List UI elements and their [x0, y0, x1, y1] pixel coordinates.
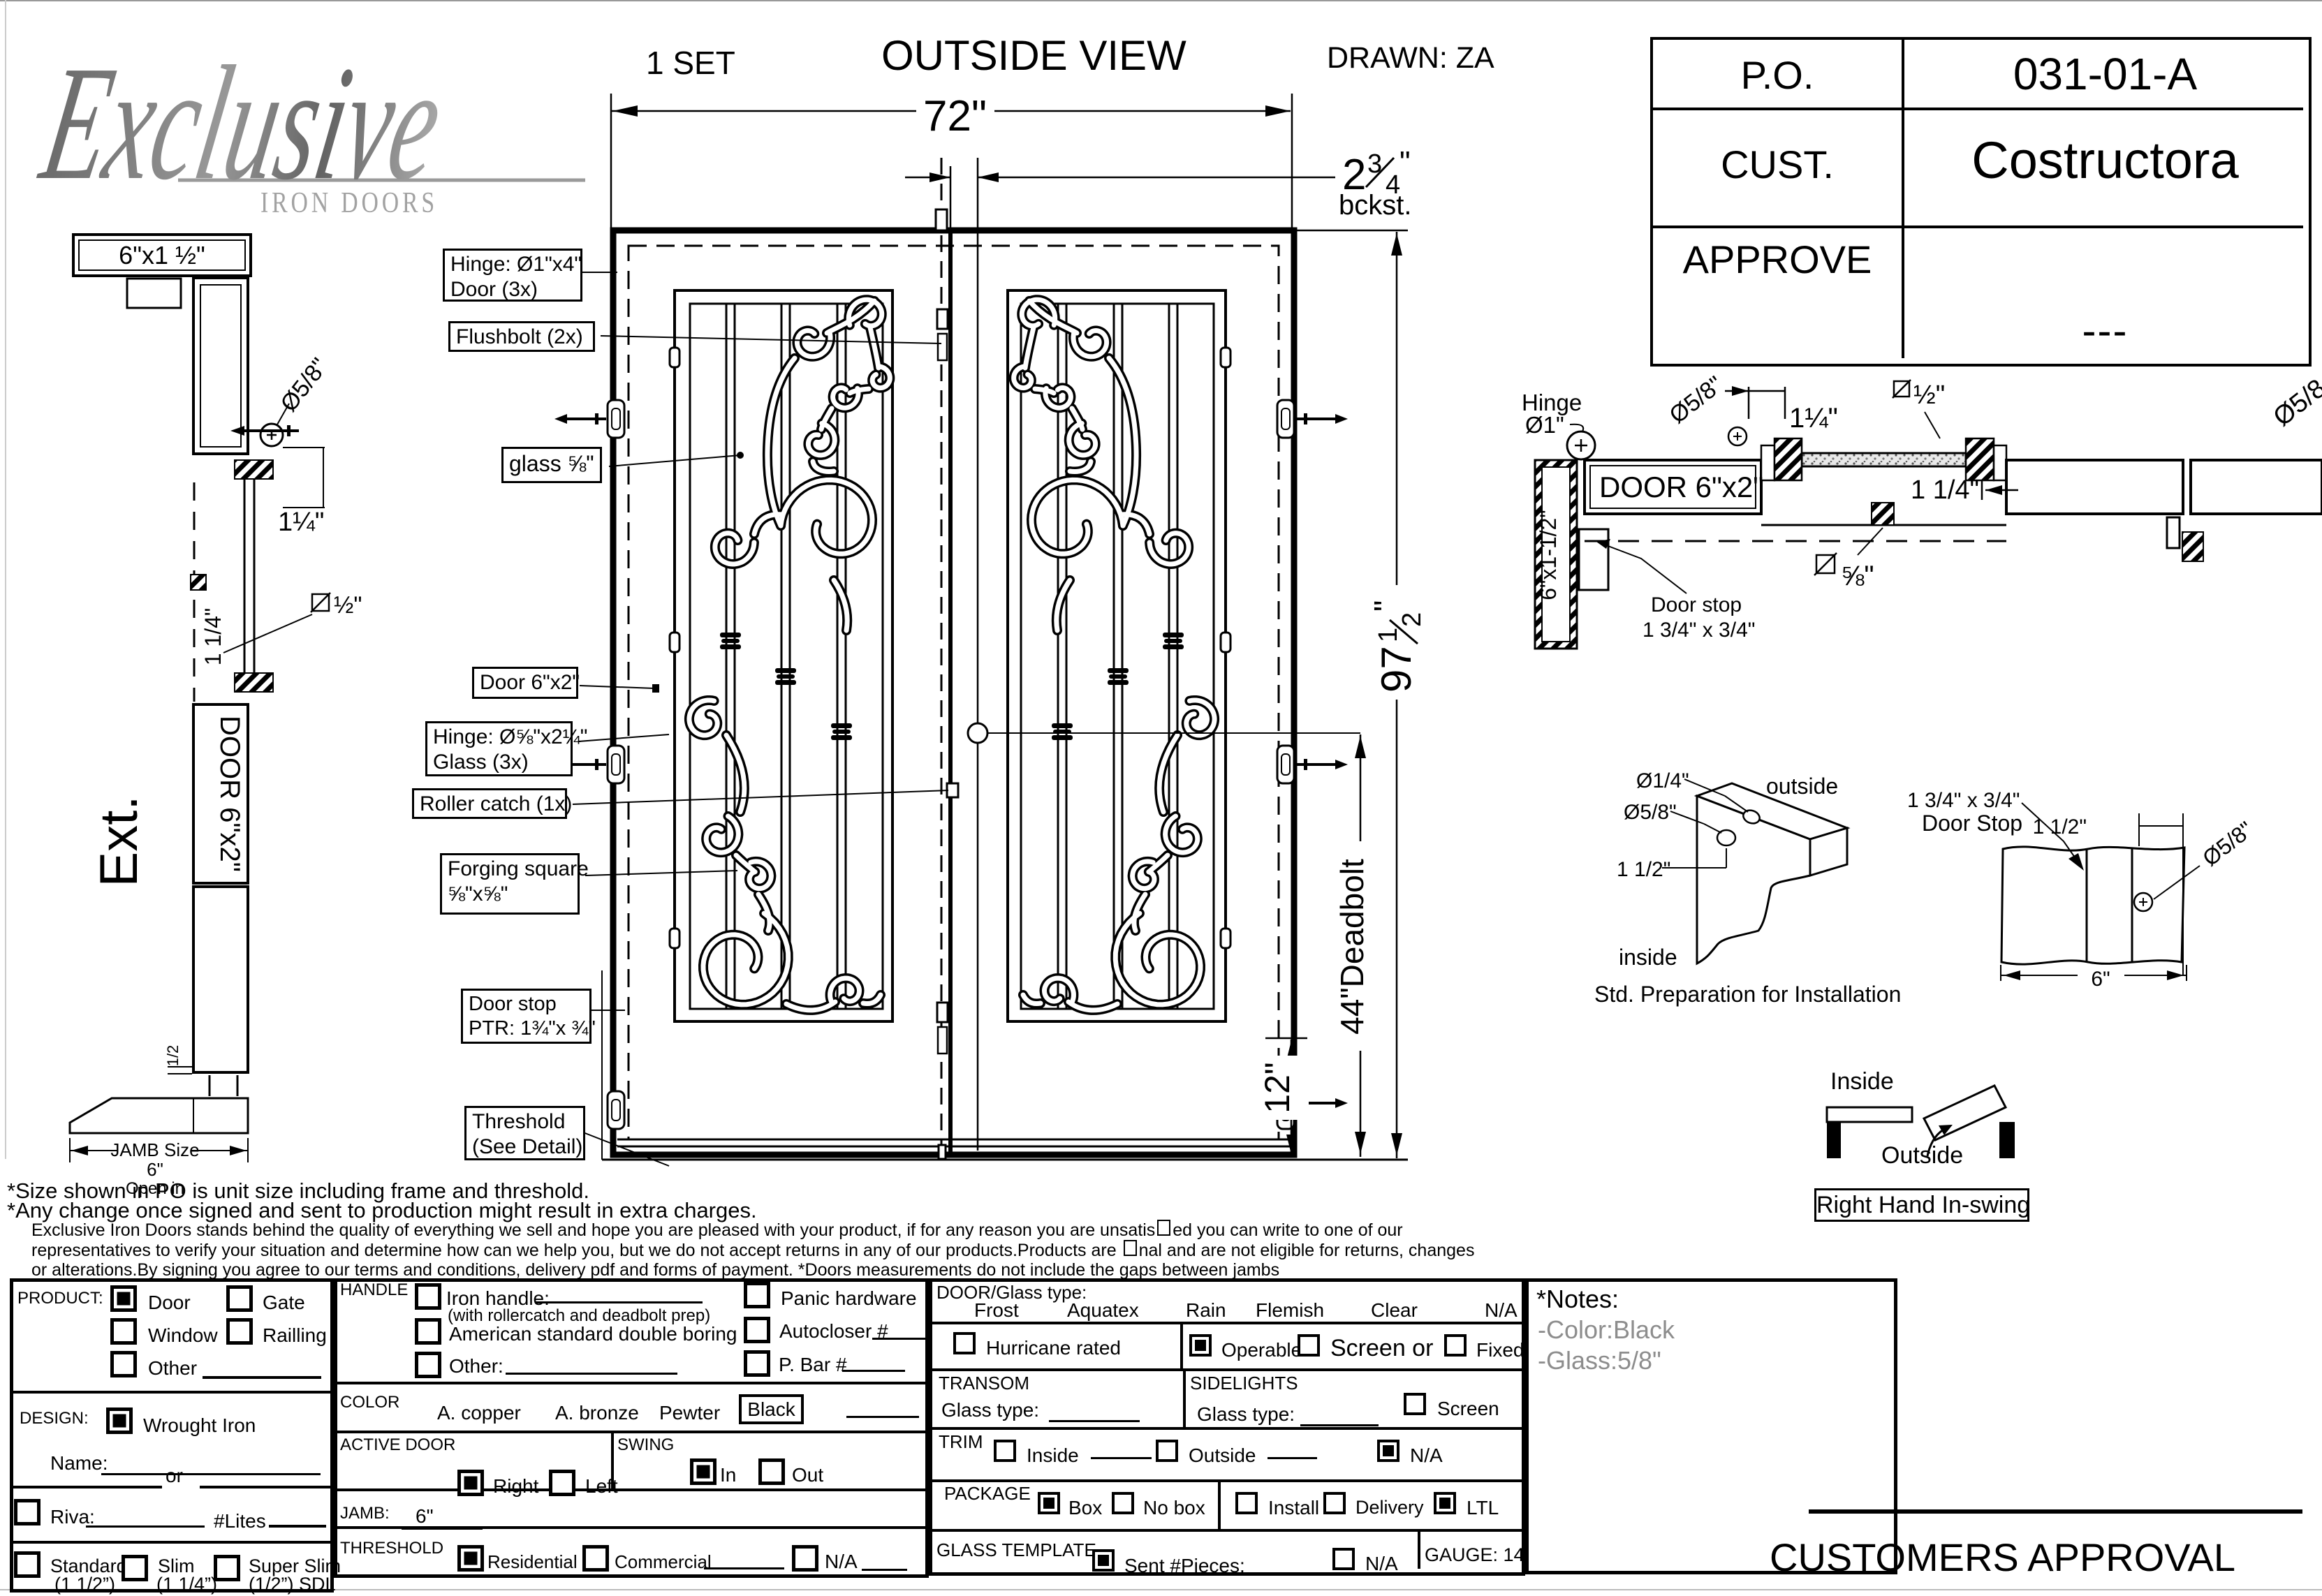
- svg-text:": ": [1399, 145, 1411, 179]
- svg-text:Std. Preparation for Installat: Std. Preparation for Installation: [1594, 982, 1901, 1007]
- svg-text:½": ½": [334, 592, 362, 619]
- svg-text:Outside: Outside: [1881, 1142, 1963, 1169]
- svg-text:1 3/4" x 3/4": 1 3/4" x 3/4": [1643, 619, 1755, 642]
- svg-text:Ø5/8": Ø5/8": [1624, 801, 1677, 824]
- svg-text:Ø1": Ø1": [1525, 412, 1564, 438]
- svg-text:3: 3: [1367, 149, 1382, 179]
- svg-text:1 1/4": 1 1/4": [1911, 475, 1979, 505]
- svg-text:DOOR 6"x2": DOOR 6"x2": [1599, 471, 1763, 503]
- svg-text:1¼": 1¼": [278, 508, 324, 537]
- svg-text:Inside: Inside: [1830, 1068, 1894, 1095]
- svg-text:2: 2: [1397, 612, 1427, 627]
- svg-text:⅝": ⅝": [1841, 561, 1874, 591]
- svg-text:Door Stop: Door Stop: [1922, 811, 2022, 836]
- svg-text:1 1/2": 1 1/2": [1617, 858, 1670, 881]
- svg-text:1/2: 1/2: [164, 1045, 182, 1067]
- svg-text:6": 6": [147, 1159, 163, 1180]
- svg-text:outside: outside: [1766, 774, 1838, 799]
- svg-text:6"x1-1/2": 6"x1-1/2": [1536, 510, 1561, 600]
- svg-text:bckst.: bckst.: [1339, 190, 1411, 221]
- svg-text:12": 12": [1258, 1062, 1297, 1113]
- svg-text:1 1/4": 1 1/4": [200, 608, 226, 666]
- svg-text:1 3/4" x 3/4": 1 3/4" x 3/4": [1907, 789, 2020, 812]
- svg-text:1 1/2": 1 1/2": [2033, 815, 2087, 838]
- svg-text:44"Deadbolt: 44"Deadbolt: [1334, 859, 1370, 1035]
- svg-text:IRON DOORS: IRON DOORS: [260, 187, 438, 219]
- svg-text:Ø1/4": Ø1/4": [1636, 769, 1689, 792]
- svg-text:6": 6": [2091, 968, 2110, 991]
- svg-text:Ø5/8": Ø5/8": [1665, 371, 1728, 429]
- svg-text:½": ½": [1913, 380, 1945, 410]
- svg-text:Ø5/8": Ø5/8": [2198, 816, 2258, 871]
- svg-text:DRAWN: ZA: DRAWN: ZA: [1327, 41, 1494, 75]
- svg-text:Ø5/8: Ø5/8: [2268, 374, 2322, 432]
- svg-text:1: 1: [1374, 628, 1403, 642]
- svg-text:": ": [1367, 600, 1404, 612]
- svg-text:1 SET: 1 SET: [646, 45, 735, 81]
- svg-text:OUTSIDE VIEW: OUTSIDE VIEW: [881, 32, 1186, 79]
- svg-text:97: 97: [1373, 646, 1420, 693]
- svg-text:Ø5/8": Ø5/8": [275, 353, 333, 417]
- svg-text:1¼": 1¼": [1789, 403, 1838, 434]
- svg-text:Ext.: Ext.: [89, 796, 149, 887]
- svg-text:DOOR 6"x2": DOOR 6"x2": [214, 716, 245, 872]
- svg-text:72": 72": [923, 92, 987, 140]
- svg-text:inside: inside: [1619, 945, 1677, 970]
- svg-text:JAMB Size: JAMB Size: [110, 1139, 199, 1160]
- svg-text:Door stop: Door stop: [1651, 593, 1742, 616]
